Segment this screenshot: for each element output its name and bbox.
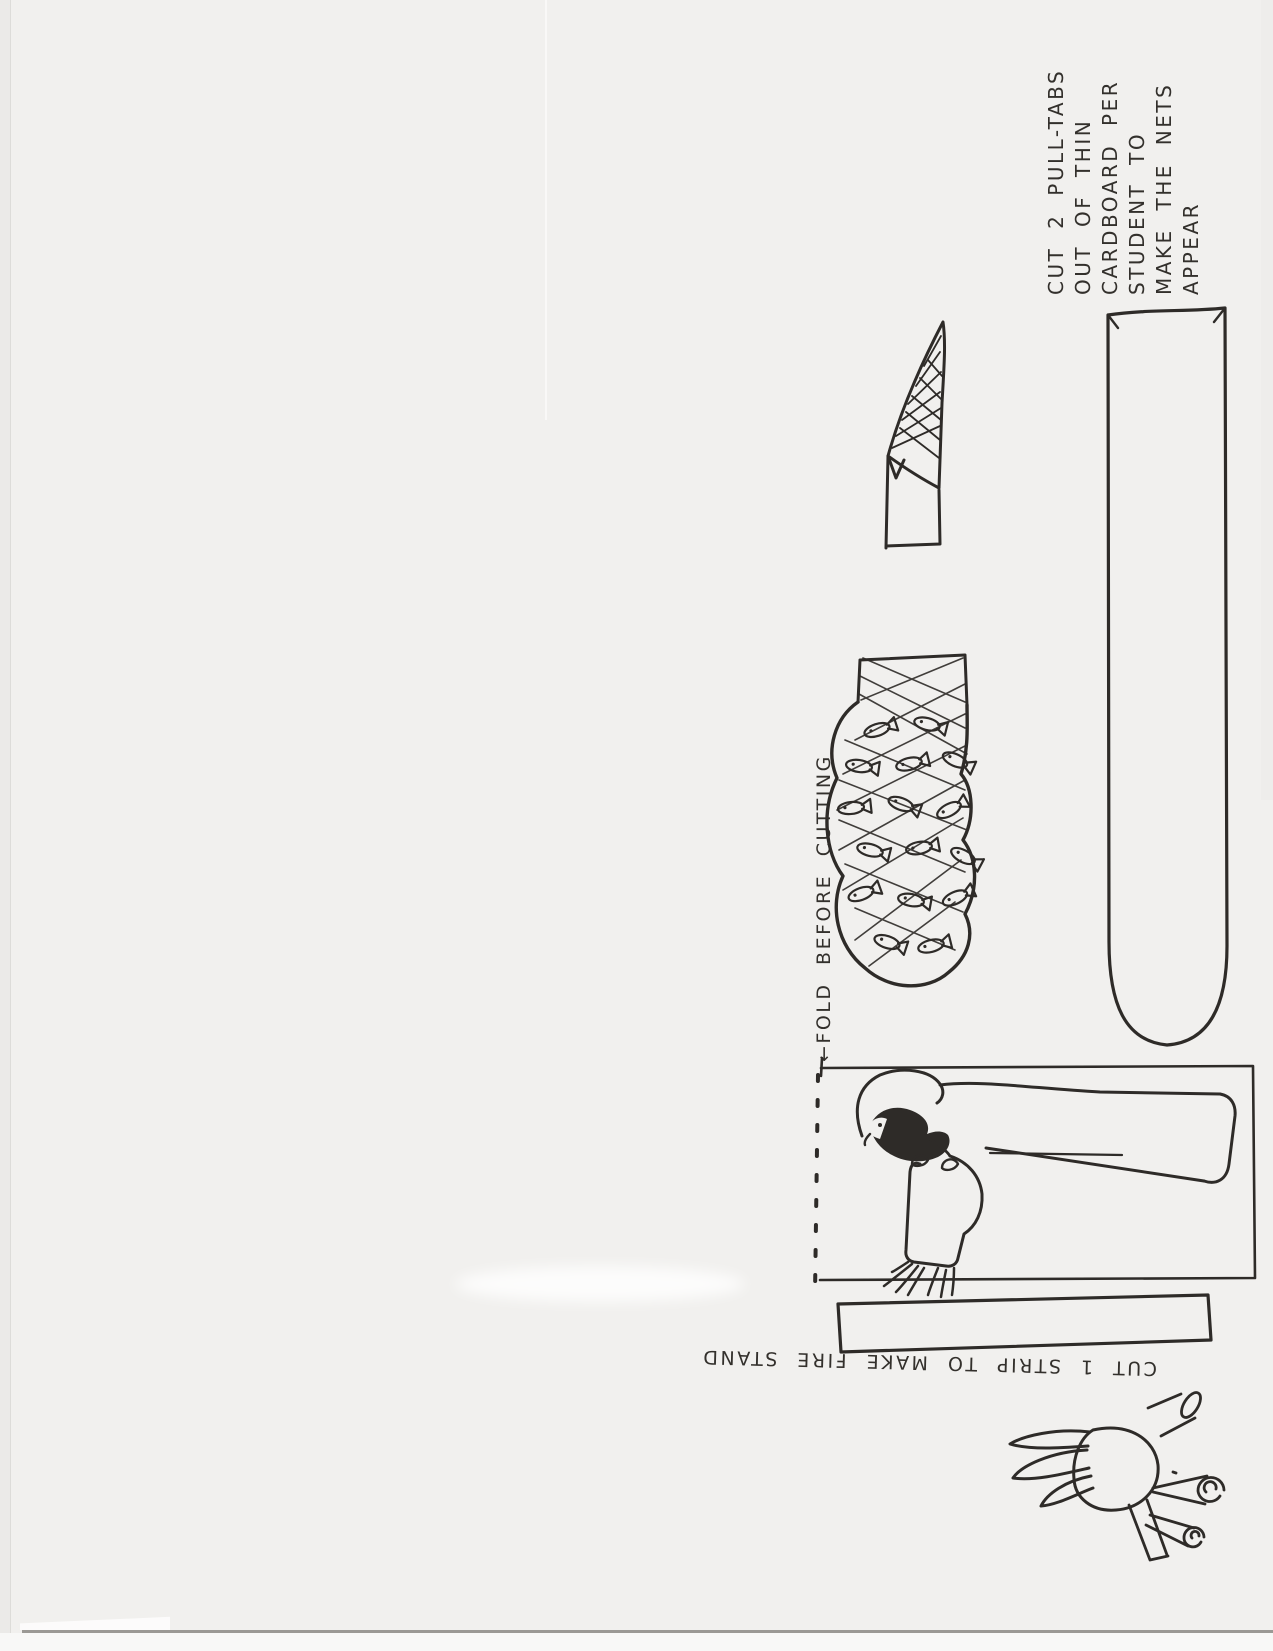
robed-figure <box>857 1070 1235 1297</box>
instruction-line: OUT OF THIN <box>1070 5 1097 295</box>
net-corner-tab-drawing <box>840 308 960 553</box>
cutout-rectangle <box>820 1058 1255 1280</box>
flames <box>1010 1428 1158 1510</box>
fire-stand-strip-drawing <box>830 1290 1220 1360</box>
whiteout-smudge <box>455 1266 745 1302</box>
paper-crease <box>545 0 547 420</box>
scanned-page: CUT 2 PULL-TABS OUT OF THIN CARDBOARD PE… <box>0 0 1273 1651</box>
eye <box>878 1123 882 1127</box>
scanner-background <box>0 1633 1273 1651</box>
net-full-of-fish-drawing <box>815 650 995 1000</box>
figure-panel-drawing <box>800 1012 1265 1302</box>
instruction-line: APPEAR <box>1178 5 1205 295</box>
campfire-drawing <box>995 1378 1215 1563</box>
corner-fold <box>20 1608 170 1630</box>
instruction-line: CUT 2 PULL-TABS <box>1043 5 1070 295</box>
instruction-line: MAKE THE NETS <box>1151 5 1178 295</box>
fold-dashed-line <box>815 1075 818 1294</box>
instruction-line: CARDBOARD PER <box>1097 5 1124 295</box>
crosshatch <box>892 336 942 458</box>
logs <box>1129 1389 1224 1560</box>
paper-right-edge <box>1261 0 1273 800</box>
paper-left-edge <box>0 0 11 1651</box>
pull-tab-template-drawing <box>1095 298 1245 1058</box>
instruction-line: STUDENT TO <box>1124 5 1151 295</box>
hair-and-beard <box>870 1108 950 1162</box>
